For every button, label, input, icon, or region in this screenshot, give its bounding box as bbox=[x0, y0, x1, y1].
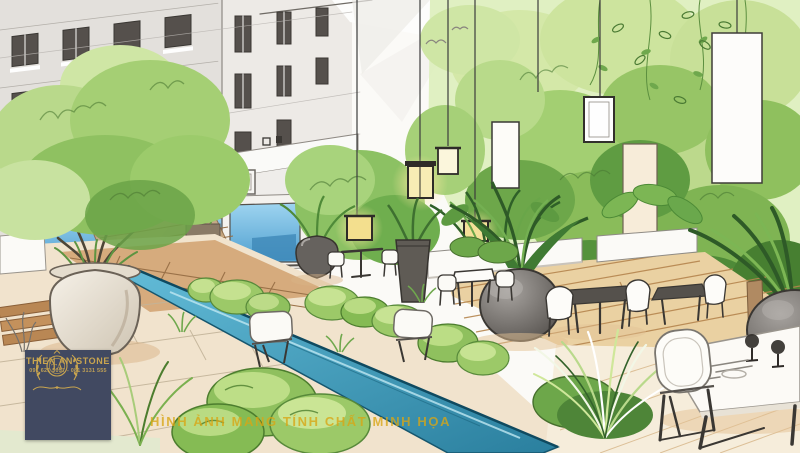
garden-sketch-screenshot: TA THIEN AN STONE 091 621 5057 - 081 313… bbox=[0, 0, 800, 453]
brand-logo: TA THIEN AN STONE 091 621 5057 - 081 313… bbox=[25, 350, 111, 440]
urn-planter bbox=[50, 263, 140, 356]
watermark-text: HÌNH ẢNH MANG TÍNH CHẤT MINH HỌA bbox=[150, 414, 451, 429]
garden-sketch bbox=[0, 0, 800, 453]
laurel-crest-icon: TA bbox=[25, 350, 89, 396]
logo-monogram: TA bbox=[51, 362, 63, 372]
